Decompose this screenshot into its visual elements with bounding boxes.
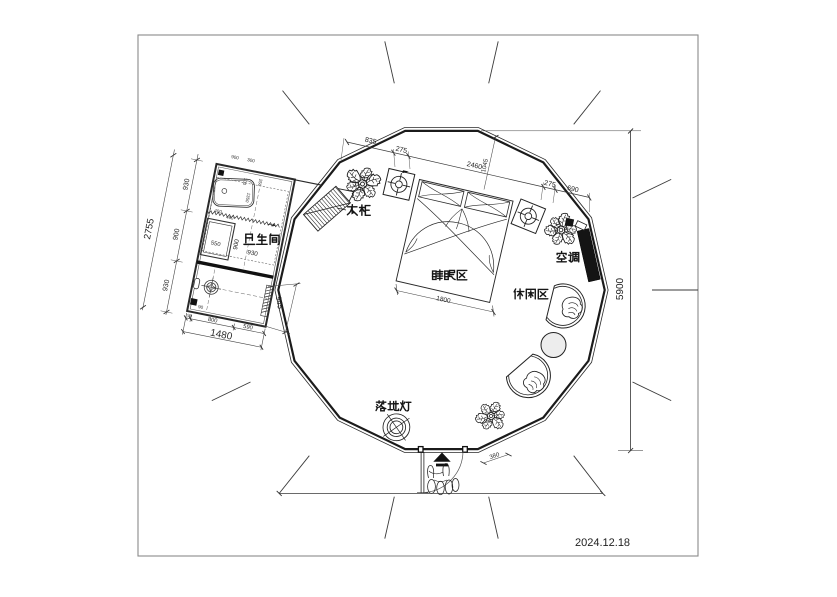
svg-text:5900: 5900 — [615, 277, 626, 300]
svg-text:2024.12.18: 2024.12.18 — [575, 537, 630, 549]
